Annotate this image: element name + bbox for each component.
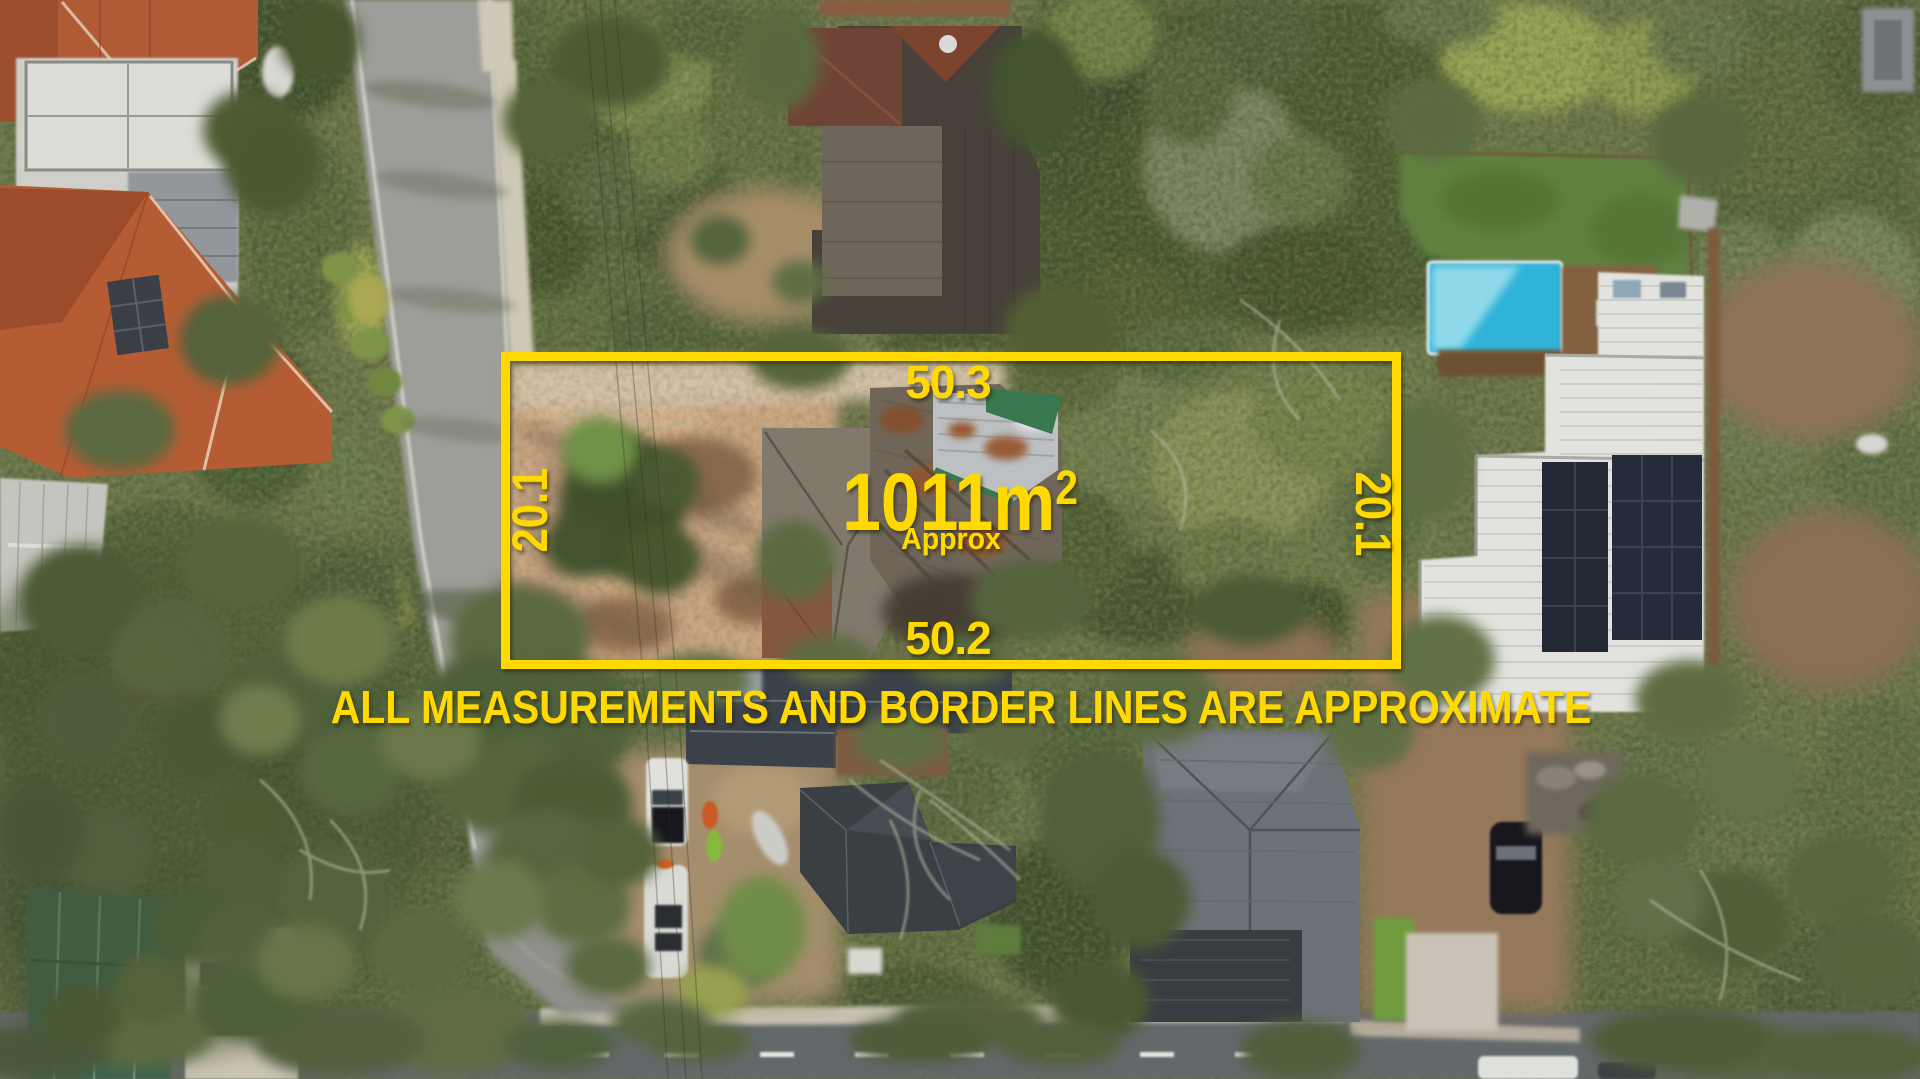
svg-text:20.1: 20.1 bbox=[1345, 472, 1400, 557]
svg-text:ALL MEASUREMENTS AND BORDER LI: ALL MEASUREMENTS AND BORDER LINES ARE AP… bbox=[331, 683, 1592, 734]
svg-text:50.3: 50.3 bbox=[905, 356, 991, 408]
svg-text:20.1: 20.1 bbox=[502, 468, 557, 553]
svg-text:50.2: 50.2 bbox=[905, 612, 991, 664]
svg-text:Approx: Approx bbox=[901, 522, 1001, 556]
